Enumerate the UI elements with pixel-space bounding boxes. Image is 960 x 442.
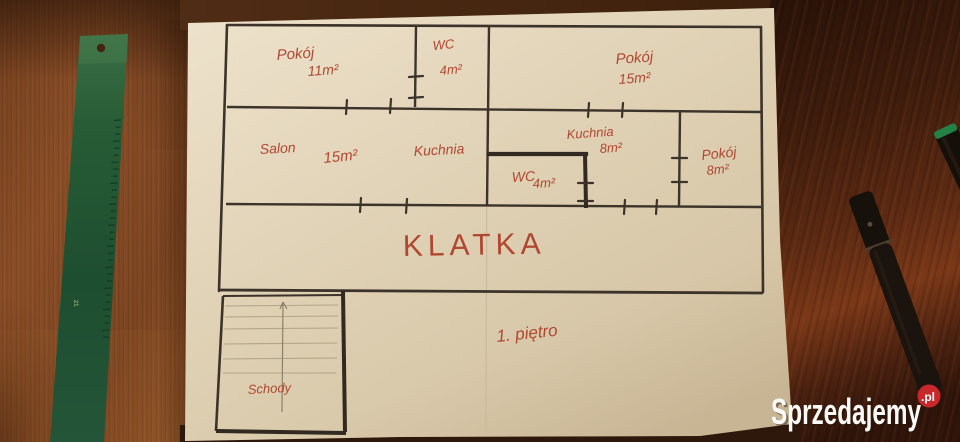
svg-text:15m²: 15m² [618, 69, 652, 87]
svg-text:21: 21 [72, 300, 78, 308]
svg-text:Schody: Schody [247, 380, 293, 397]
svg-text:Sprzedajemy: Sprzedajemy [771, 391, 921, 432]
svg-text:4m²: 4m² [439, 61, 463, 78]
svg-text:8m²: 8m² [706, 161, 731, 178]
svg-text:Kuchnia: Kuchnia [413, 140, 465, 159]
svg-text:8m²: 8m² [599, 139, 623, 156]
svg-text:11m²: 11m² [307, 61, 340, 79]
svg-text:.pl: .pl [921, 390, 935, 404]
svg-text:Pokój: Pokój [276, 44, 315, 64]
svg-text:Salon: Salon [259, 139, 296, 157]
svg-text:Pokój: Pokój [615, 48, 654, 68]
svg-text:WC: WC [432, 36, 455, 53]
svg-text:4m²: 4m² [532, 175, 556, 191]
svg-text:KLATKA: KLATKA [403, 228, 546, 263]
